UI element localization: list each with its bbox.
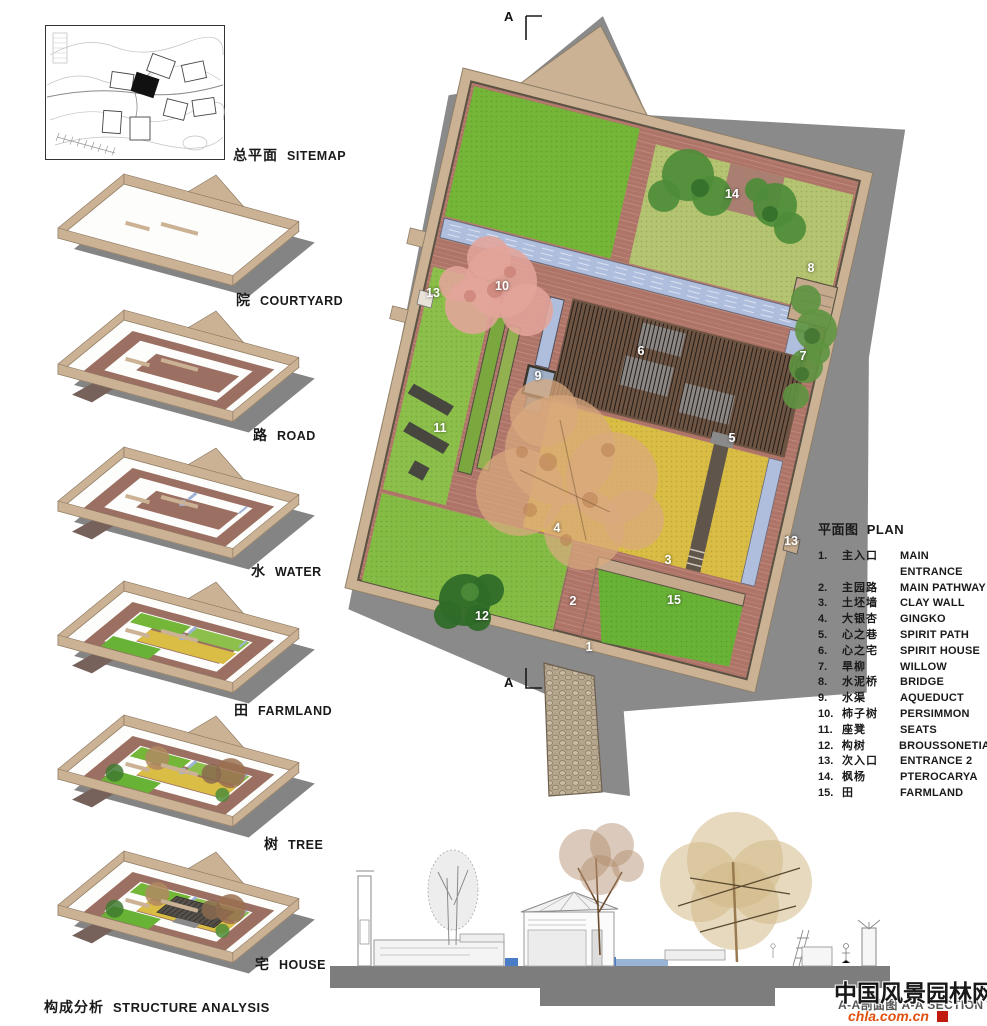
legend-label-zh: 柿子树 — [842, 707, 900, 723]
plan-marker-9: 9 — [535, 369, 542, 383]
plan-marker-2: 2 — [570, 594, 577, 608]
watermark: 中国风景园林网 chla.com.cn — [834, 974, 987, 1026]
legend-label-zh: 田 — [842, 786, 900, 802]
legend-number: 6. — [818, 644, 842, 660]
legend-row: 14.枫杨PTEROCARYA — [818, 770, 987, 786]
plan-marker-7: 7 — [800, 349, 807, 363]
structure-analysis-title: 构成分析STRUCTURE ANALYSIS — [44, 997, 270, 1017]
legend-number: 9. — [818, 691, 842, 707]
legend-label-en: SPIRIT PATH — [900, 628, 987, 644]
legend-label-zh: 心之巷 — [842, 628, 900, 644]
legend-label-en: SEATS — [900, 723, 987, 739]
legend-row: 9.水渠AQUEDUCT — [818, 691, 987, 707]
plan-marker-15: 15 — [667, 593, 681, 607]
plan-marker-13: 13 — [784, 534, 798, 548]
plan-marker-5: 5 — [729, 431, 736, 445]
legend-number: 8. — [818, 675, 842, 691]
legend-label-zh: 水渠 — [842, 691, 900, 707]
legend-number: 5. — [818, 628, 842, 644]
analysis-title-zh: 构成分析 — [44, 999, 104, 1015]
legend-label-zh: 旱柳 — [842, 660, 900, 676]
sitemap-label: 总平面SITEMAP — [233, 145, 346, 165]
legend-row: 10.柿子树PERSIMMON — [818, 707, 987, 723]
legend-label-en: BROUSSONETIA — [899, 739, 987, 755]
legend-label-en: GINGKO — [900, 612, 987, 628]
plan-legend-rows: 1.主入口MAIN ENTRANCE2.主园路MAIN PATHWAY3.土坯墙… — [818, 549, 987, 802]
sitemap-label-zh: 总平面 — [233, 147, 278, 163]
plan-marker-11: 11 — [433, 421, 446, 435]
stage-label-zh: 路 — [253, 427, 268, 443]
legend-row: 2.主园路MAIN PATHWAY — [818, 581, 987, 597]
watermark-site-name: 中国风景园林网 — [834, 974, 987, 1008]
legend-label-zh: 次入口 — [842, 754, 900, 770]
sitemap-label-en: SITEMAP — [287, 149, 346, 163]
sitemap-thumbnail — [45, 25, 225, 160]
plan-marker-14: 14 — [725, 187, 739, 201]
legend-row: 12.构树BROUSSONETIA — [818, 739, 987, 755]
legend-number: 2. — [818, 581, 842, 597]
stage-label-road: 路ROAD — [253, 425, 316, 445]
presentation-board: { "sitemap": {"label_zh": "总平面", "label_… — [0, 0, 987, 1024]
stage-label-zh: 宅 — [255, 956, 270, 972]
legend-row: 1.主入口MAIN ENTRANCE — [818, 549, 987, 581]
legend-number: 14. — [818, 770, 842, 786]
legend-number: 7. — [818, 660, 842, 676]
plan-marker-13: 13 — [426, 286, 440, 300]
legend-label-en: SPIRIT HOUSE — [900, 644, 987, 660]
legend-label-en: MAIN ENTRANCE — [900, 549, 987, 581]
section-mark-top: A — [504, 9, 513, 24]
stage-label-house: 宅HOUSE — [255, 954, 326, 974]
legend-label-zh: 心之宅 — [842, 644, 900, 660]
legend-row: 5.心之巷SPIRIT PATH — [818, 628, 987, 644]
legend-label-zh: 构树 — [842, 739, 899, 755]
legend-row: 13.次入口ENTRANCE 2 — [818, 754, 987, 770]
legend-row: 7.旱柳WILLOW — [818, 660, 987, 676]
plan-marker-4: 4 — [554, 521, 561, 535]
plan-legend: 平面图 PLAN 1.主入口MAIN ENTRANCE2.主园路MAIN PAT… — [818, 519, 987, 802]
legend-label-en: MAIN PATHWAY — [900, 581, 987, 597]
plan-marker-1: 1 — [586, 640, 593, 654]
legend-label-zh: 土坯墙 — [842, 596, 900, 612]
plan-title-zh: 平面图 — [818, 522, 859, 537]
legend-label-en: PTEROCARYA — [900, 770, 987, 786]
stage-label-en: ROAD — [277, 429, 316, 443]
legend-row: 11.座凳SEATS — [818, 723, 987, 739]
legend-label-zh: 水泥桥 — [842, 675, 900, 691]
legend-label-en: WILLOW — [900, 660, 987, 676]
legend-number: 13. — [818, 754, 842, 770]
legend-row: 15.田FARMLAND — [818, 786, 987, 802]
legend-label-zh: 枫杨 — [842, 770, 900, 786]
legend-number: 10. — [818, 707, 842, 723]
legend-label-en: BRIDGE — [900, 675, 987, 691]
legend-row: 8.水泥桥BRIDGE — [818, 675, 987, 691]
watermark-url[interactable]: chla.com.cn — [848, 1008, 929, 1024]
legend-number: 12. — [818, 739, 842, 755]
legend-row: 4.大银杏GINGKO — [818, 612, 987, 628]
plan-marker-6: 6 — [638, 344, 645, 358]
plan-marker-3: 3 — [665, 553, 672, 567]
plan-legend-title: 平面图 PLAN — [818, 519, 987, 538]
legend-number: 15. — [818, 786, 842, 802]
legend-label-en: AQUEDUCT — [900, 691, 987, 707]
plan-title-en: PLAN — [867, 522, 904, 537]
section-mark-bottom: A — [504, 675, 513, 690]
legend-number: 3. — [818, 596, 842, 612]
section-drawing — [330, 812, 890, 1006]
legend-number: 4. — [818, 612, 842, 628]
legend-label-zh: 主入口 — [842, 549, 900, 581]
legend-label-en: ENTRANCE 2 — [900, 754, 987, 770]
legend-label-zh: 大银杏 — [842, 612, 900, 628]
legend-number: 11. — [818, 723, 842, 739]
legend-number: 1. — [818, 549, 842, 581]
stage-diagram-house — [36, 847, 316, 997]
legend-label-en: FARMLAND — [900, 786, 987, 802]
legend-label-en: CLAY WALL — [900, 596, 987, 612]
plan-marker-12: 12 — [475, 609, 489, 623]
plan-marker-8: 8 — [808, 261, 815, 275]
analysis-title-en: STRUCTURE ANALYSIS — [113, 1000, 270, 1015]
legend-row: 6.心之宅SPIRIT HOUSE — [818, 644, 987, 660]
legend-row: 3.土坯墙CLAY WALL — [818, 596, 987, 612]
watermark-seal-icon — [937, 1011, 948, 1022]
plan-marker-10: 10 — [495, 279, 509, 293]
stage-label-en: HOUSE — [279, 958, 326, 972]
legend-label-zh: 主园路 — [842, 581, 900, 597]
legend-label-zh: 座凳 — [842, 723, 900, 739]
legend-label-en: PERSIMMON — [900, 707, 987, 723]
